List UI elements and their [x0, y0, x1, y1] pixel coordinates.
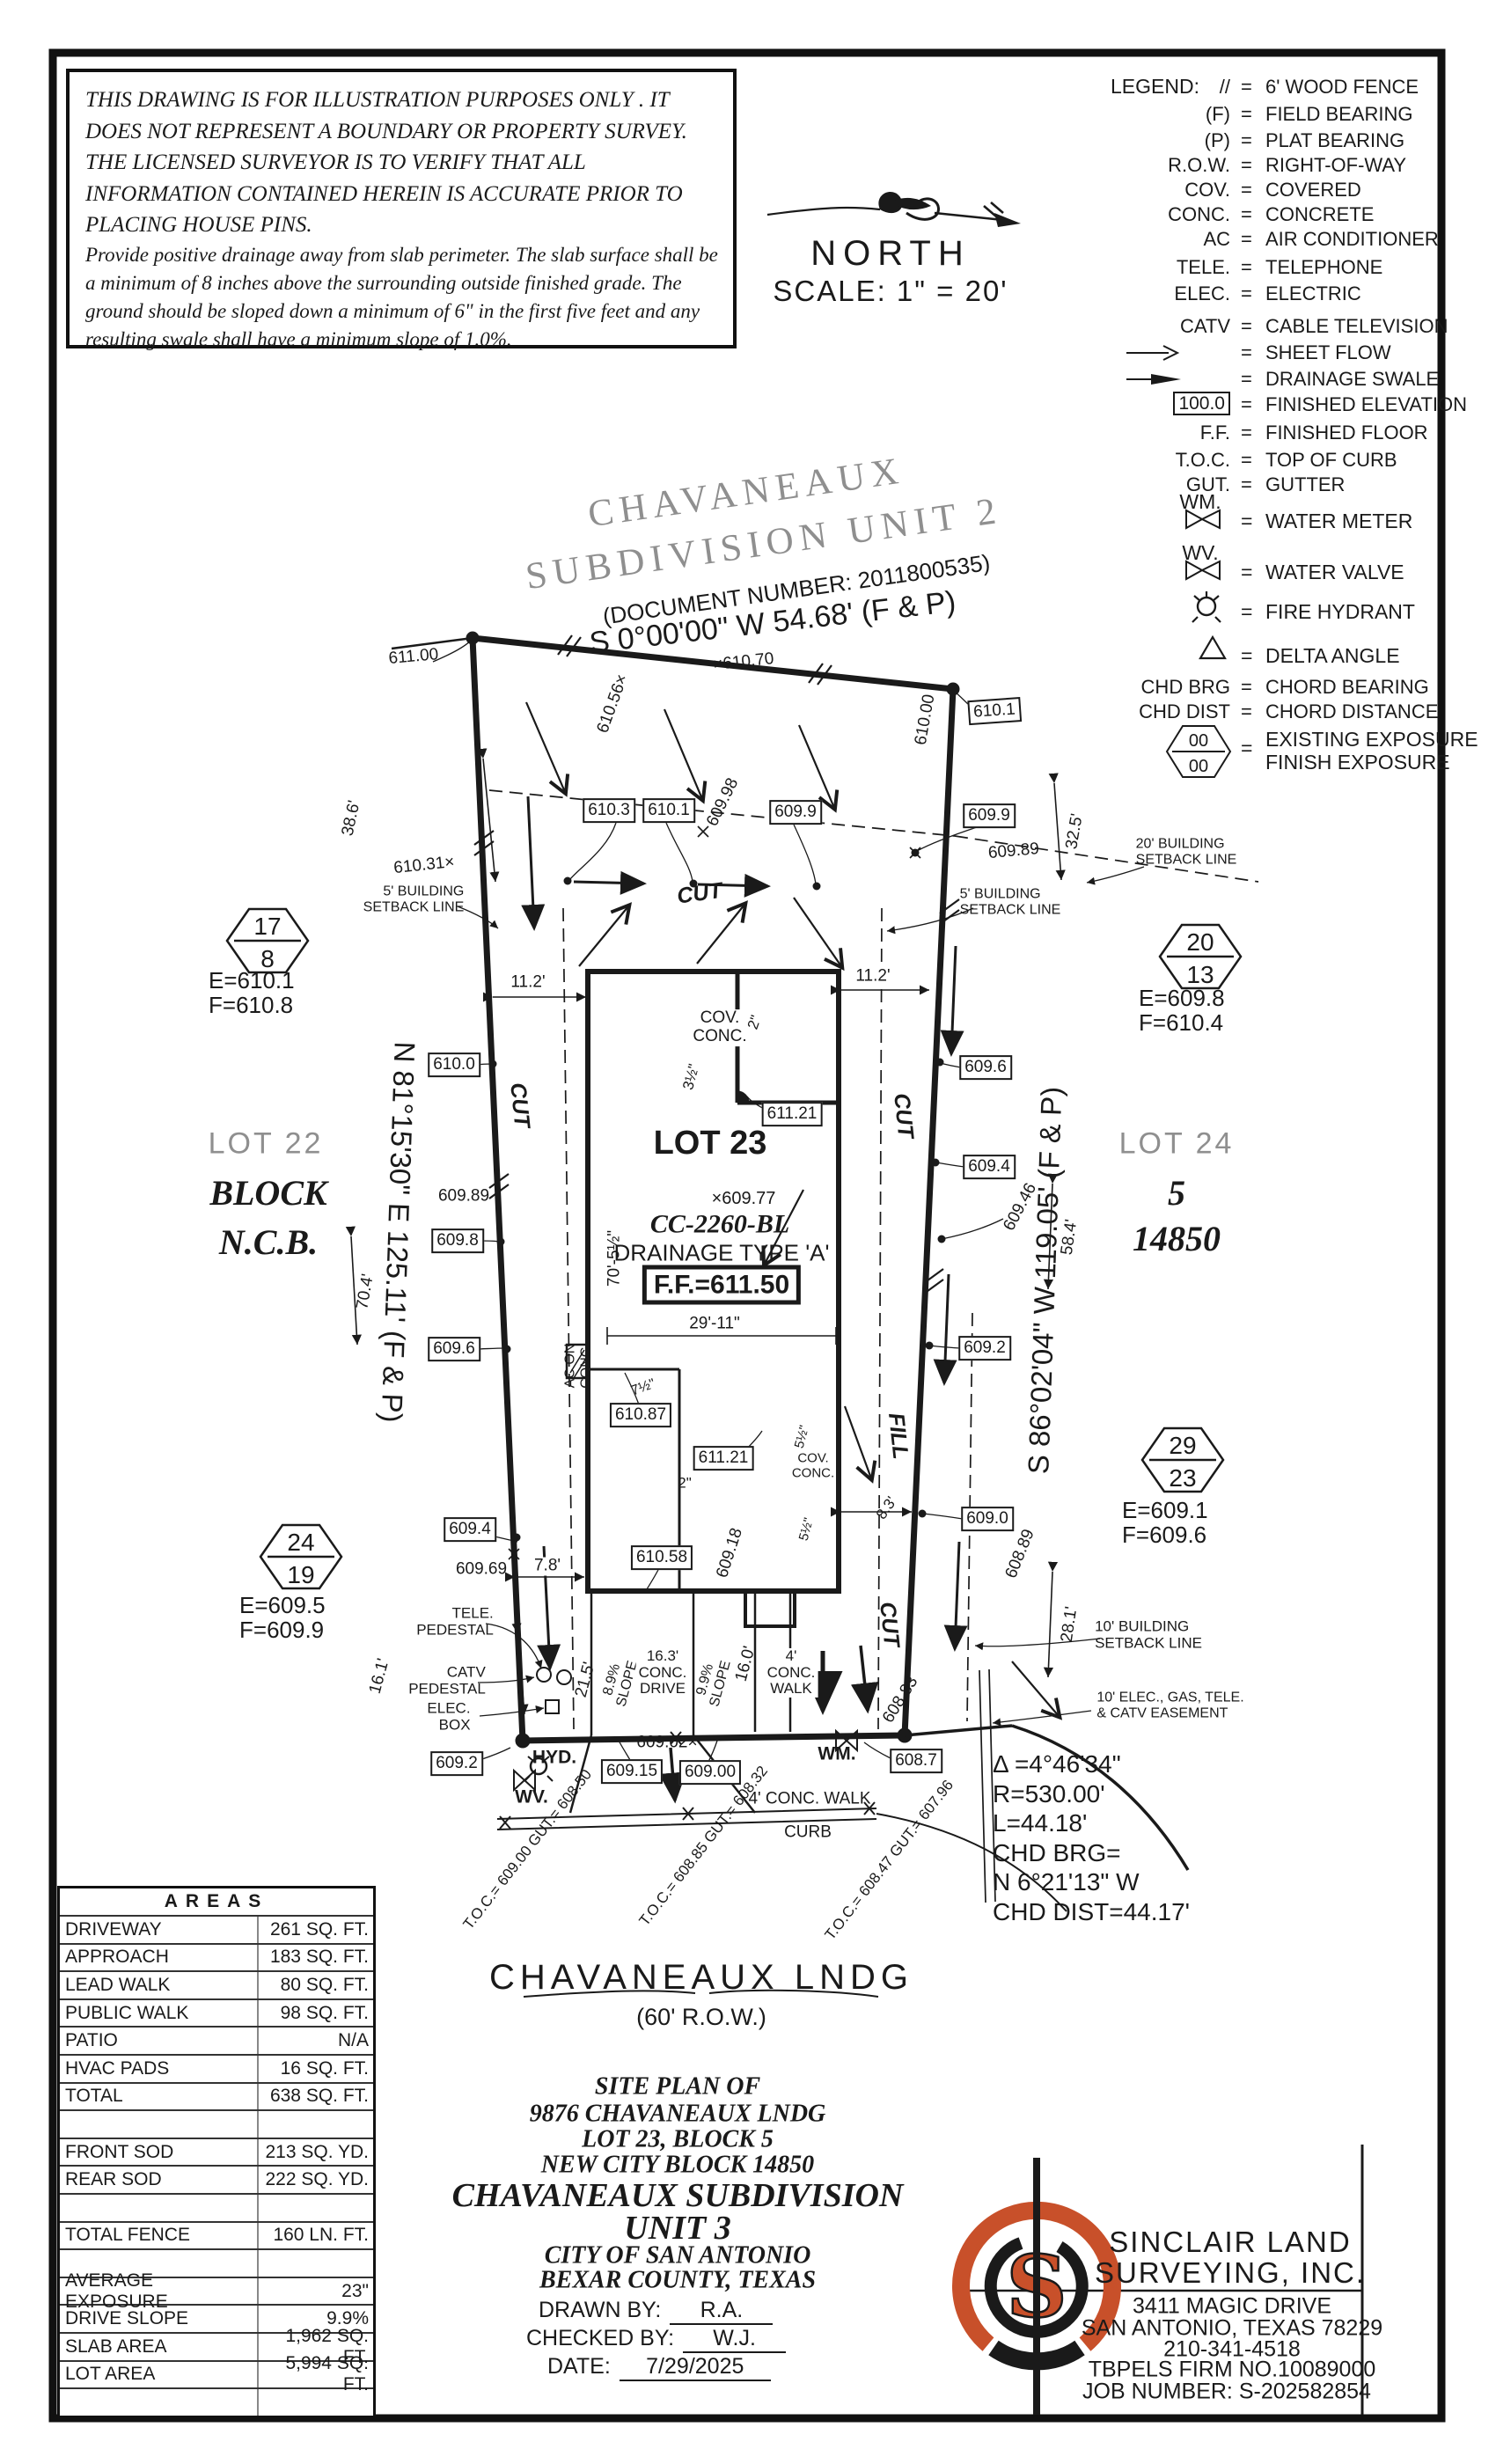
titleblock-lot-block: LOT 23, BLOCK 5 — [582, 2127, 774, 2154]
table-cell-label: SLAB AREA — [60, 2334, 259, 2360]
table-row — [60, 2109, 373, 2138]
svg-text:19: 19 — [287, 1561, 314, 1588]
cut-label-west: CUT — [505, 1082, 534, 1129]
legend-wm-eq: = — [1241, 510, 1252, 532]
svg-text:17: 17 — [253, 913, 281, 940]
legend-hex-desc: EXISTING EXPOSURE FINISH EXPOSURE — [1265, 728, 1478, 774]
svg-text:00: 00 — [1189, 731, 1208, 751]
curve-data: Δ =4°46'34" R=530.00' L=44.18' CHD BRG= … — [993, 1749, 1190, 1927]
table-cell-value: 23" — [259, 2281, 373, 2302]
catv-pedestal-label: CATV PEDESTAL — [408, 1664, 486, 1697]
existing-exposure-24: E=609.5 — [239, 1593, 326, 1618]
scale-label: SCALE: 1" = 20' — [773, 275, 1008, 307]
table-cell-label — [60, 2389, 259, 2416]
table-cell-value: 16 SQ. FT. — [259, 2058, 373, 2079]
areas-table-title: AREAS — [60, 1888, 373, 1915]
legend-delta-eq: = — [1241, 645, 1252, 667]
table-row: HVAC PADS 16 SQ. FT. — [60, 2054, 373, 2082]
elev-box-610-0: 610.0 — [428, 1052, 480, 1077]
legend-row-toc: T.O.C.=TOP OF CURB — [1126, 449, 1478, 473]
tele-pedestal-label: TELE. PEDESTAL — [416, 1605, 494, 1638]
drainage-type-label: DRAINAGE TYPE 'A' — [614, 1241, 830, 1266]
table-row: DRIVEWAY 261 SQ. FT. — [60, 1915, 373, 1943]
legend-wm-desc: WATER METER — [1265, 510, 1412, 532]
elev-box-609-2-sw: 609.2 — [430, 1751, 483, 1776]
legend-delta-desc: DELTA ANGLE — [1265, 645, 1400, 667]
elev-box-610-1-ne: 610.1 — [967, 697, 1021, 725]
drawn-by-label: DRAWN BY: — [539, 2298, 661, 2322]
table-cell-label: FRONT SOD — [60, 2139, 259, 2166]
finish-exposure-20: F=610.4 — [1139, 1010, 1223, 1036]
elev-box-609-15: 609.15 — [601, 1759, 663, 1784]
water-meter-icon — [1184, 509, 1221, 530]
table-cell-label: DRIVE SLOPE — [60, 2306, 259, 2332]
date-value: 7/29/2025 — [620, 2355, 771, 2381]
firm-job-number: JOB NUMBER: S-202582854 — [1082, 2380, 1371, 2404]
dim-70-5half: 70'-5½" — [606, 1230, 625, 1287]
elev-box-609-00: 609.00 — [679, 1760, 741, 1785]
drainage-swale-icon — [1126, 370, 1184, 389]
svg-text:23: 23 — [1169, 1464, 1196, 1492]
table-cell-label: TOTAL FENCE — [60, 2223, 259, 2249]
elev-box-609-4-west: 609.4 — [444, 1517, 496, 1542]
finished-elevation-box-icon: 100.0 — [1173, 392, 1230, 415]
ac-on-conc-label: AC ON CONC. — [562, 1343, 593, 1389]
exposure-hex-17-8: 17 8 — [225, 906, 310, 975]
setback-20ft-label: 20' BUILDING SETBACK LINE — [1136, 836, 1237, 867]
drawn-by-value: R.A. — [670, 2299, 773, 2325]
legend-row-concrete: CONC.=CONCRETE — [1126, 203, 1478, 227]
setback-5ft-label-east: 5' BUILDING SETBACK LINE — [960, 886, 1061, 917]
checked-by-row: CHECKED BY:W.J. — [526, 2327, 786, 2353]
legend-row-field-bearing: (F)=FIELD BEARING — [1126, 103, 1478, 127]
lot-22-label: LOT 22 — [209, 1127, 324, 1160]
dim-29-11: 29'-11" — [686, 1316, 743, 1334]
cut-label-east-upper: CUT — [889, 1092, 918, 1140]
elev-box-611-21-porch: 611.21 — [762, 1102, 823, 1126]
checked-by-value: W.J. — [683, 2327, 786, 2353]
firm-name-line2: SURVEYING, INC. — [1095, 2257, 1366, 2289]
site-plan-sheet: S THIS DRAWING IS FOR ILLUSTRATION PURPO… — [0, 0, 1496, 2464]
conc-walk-vertical-label: 4' CONC. WALK — [765, 1648, 818, 1698]
elev-box-610-87: 610.87 — [610, 1403, 671, 1427]
table-cell-label: LEAD WALK — [60, 1972, 259, 1998]
table-cell-label: PATIO — [60, 2028, 259, 2054]
legend-wv-desc: WATER VALVE — [1265, 561, 1404, 583]
legend-row-covered: COV.=COVERED — [1126, 179, 1478, 202]
legend-row-chd-dist: CHD DIST=CHORD DISTANCE — [1126, 700, 1478, 724]
table-row: LOT AREA 5,994 SQ. FT. — [60, 2360, 373, 2388]
table-cell-label — [60, 2111, 259, 2138]
easement-label: 10' ELEC., GAS, TELE. & CATV EASEMENT — [1096, 1690, 1243, 1720]
lot-23-label: LOT 23 — [654, 1126, 767, 1162]
stoop-2in-label: 2" — [678, 1476, 692, 1492]
block-5-label: 5 — [1168, 1174, 1185, 1213]
legend-row-ac: AC=AIR CONDITIONER — [1126, 228, 1478, 252]
curb-label: CURB — [784, 1824, 832, 1843]
legend-hydrant-eq: = — [1241, 601, 1252, 623]
legend-row-telephone: TELE.=TELEPHONE — [1126, 256, 1478, 280]
north-label: NORTH — [810, 234, 970, 273]
table-cell-label: LOT AREA — [60, 2362, 259, 2388]
date-label: DATE: — [547, 2354, 611, 2379]
existing-exposure-29: E=609.1 — [1122, 1498, 1208, 1523]
covered-concrete-stoop-label: COV. CONC. — [792, 1452, 834, 1481]
elev-box-609-9: 609.9 — [769, 800, 822, 825]
table-cell-value: 213 SQ. YD. — [259, 2142, 373, 2163]
table-row: LEAD WALK 80 SQ. FT. — [60, 1970, 373, 1998]
exposure-hex-29-23: 29 23 — [1140, 1426, 1225, 1494]
titleblock-address: 9876 CHAVANEAUX LNDG — [530, 2101, 826, 2129]
legend-row-finished-elevation: 100.0 =FINISHED ELEVATION — [1126, 393, 1478, 417]
table-row: PUBLIC WALK 98 SQ. FT. — [60, 1998, 373, 2027]
areas-table: AREAS DRIVEWAY 261 SQ. FT. APPROACH 183 … — [57, 1886, 376, 2418]
conc-walk-horizontal-label: 4' CONC. WALK — [748, 1791, 870, 1809]
wm-label: WM. — [818, 1743, 855, 1764]
cc-2260-bl-label: CC-2260-BL — [650, 1210, 789, 1239]
areas-table-body: DRIVEWAY 261 SQ. FT. APPROACH 183 SQ. FT… — [60, 1915, 373, 2416]
table-cell-value: 5,994 SQ. FT. — [259, 2353, 373, 2395]
spot-609-69: 609.69 — [456, 1561, 507, 1580]
table-cell-label: PUBLIC WALK — [60, 2000, 259, 2027]
titleblock-new-city-block: NEW CITY BLOCK 14850 — [541, 2152, 814, 2180]
table-cell-label: AVERAGE EXPOSURE — [60, 2278, 259, 2305]
table-cell-value: 80 SQ. FT. — [259, 1975, 373, 1996]
disclaimer-box: THIS DRAWING IS FOR ILLUSTRATION PURPOSE… — [66, 69, 737, 348]
disclaimer-note: Provide positive drainage away from slab… — [85, 241, 721, 355]
legend-hex-eq: = — [1241, 737, 1252, 759]
legend-row-wood-fence: //=6' WOOD FENCE — [1126, 76, 1478, 99]
legend-row-plat-bearing: (P)=PLAT BEARING — [1126, 129, 1478, 153]
legend-row-chd-brg: CHD BRG=CHORD BEARING — [1126, 676, 1478, 700]
conc-drive-label: 16.3' CONC. DRIVE — [636, 1648, 690, 1698]
hydrant-label: HYD. — [532, 1747, 576, 1767]
table-row: AVERAGE EXPOSURE 23" — [60, 2277, 373, 2305]
dim-11-2-west: 11.2' — [508, 974, 547, 993]
finished-floor-value: F.F.=611.50 — [642, 1265, 801, 1305]
elev-box-609-2-east: 609.2 — [958, 1336, 1011, 1360]
legend-row-sheet-flow: =SHEET FLOW — [1126, 341, 1478, 365]
lot-24-label: LOT 24 — [1119, 1127, 1235, 1160]
checked-by-label: CHECKED BY: — [526, 2326, 674, 2350]
elec-box-label: ELEC. BOX — [427, 1700, 470, 1733]
table-cell-value: 98 SQ. FT. — [259, 2003, 373, 2024]
titleblock-site-plan-of: SITE PLAN OF — [595, 2074, 760, 2101]
table-cell-label: HVAC PADS — [60, 2056, 259, 2082]
fill-label-east: FILL — [884, 1412, 913, 1460]
existing-exposure-17: E=610.1 — [209, 968, 295, 994]
legend-row-catv: CATV=CABLE TELEVISION — [1126, 315, 1478, 339]
legend-row-ff: F.F.=FINISHED FLOOR — [1126, 422, 1478, 445]
block-label: BLOCK — [209, 1174, 326, 1213]
street-name: CHAVANEAUX LNDG — [489, 1958, 913, 1997]
table-cell-value: 160 LN. FT. — [259, 2225, 373, 2246]
legend-wv-eq: = — [1241, 561, 1252, 583]
sheet-flow-icon — [1126, 343, 1184, 363]
setback-5ft-label-west: 5' BUILDING SETBACK LINE — [363, 884, 465, 914]
setback-10ft-label: 10' BUILDING SETBACK LINE — [1095, 1618, 1202, 1651]
table-cell-label: REAR SOD — [60, 2167, 259, 2193]
legend-row-electric: ELEC.=ELECTRIC — [1126, 282, 1478, 306]
svg-text:24: 24 — [287, 1529, 314, 1556]
elev-box-610-1: 610.1 — [642, 798, 695, 823]
table-row: TOTAL FENCE 160 LN. FT. — [60, 2221, 373, 2249]
existing-exposure-20: E=609.8 — [1139, 986, 1225, 1011]
cut-label-east-lower: CUT — [875, 1601, 904, 1648]
table-row: FRONT SOD 213 SQ. YD. — [60, 2138, 373, 2166]
finish-exposure-24: F=609.9 — [239, 1617, 324, 1643]
spot-609-77: ×609.77 — [712, 1189, 776, 1208]
disclaimer-caps: THIS DRAWING IS FOR ILLUSTRATION PURPOSE… — [85, 84, 721, 241]
delta-angle-icon — [1199, 635, 1227, 660]
finish-exposure-29: F=609.6 — [1122, 1522, 1206, 1548]
wv-label: WV. — [515, 1786, 548, 1807]
finish-exposure-17: F=610.8 — [209, 993, 293, 1018]
table-cell-value: 183 SQ. FT. — [259, 1947, 373, 1968]
sheet-flow-arrows — [526, 702, 1059, 1716]
dim-11-2-east: 11.2' — [853, 968, 892, 986]
date-row: DATE:7/29/2025 — [547, 2355, 771, 2381]
water-valve-icon — [1184, 560, 1221, 581]
north-arrow-icon — [759, 174, 1049, 238]
table-cell-label: APPROACH — [60, 1945, 259, 1971]
table-cell-value: N/A — [259, 2030, 373, 2051]
elev-box-608-7: 608.7 — [890, 1749, 942, 1773]
exposure-hex-20-13: 20 13 — [1158, 922, 1243, 991]
legend-row-row: R.O.W.=RIGHT-OF-WAY — [1126, 154, 1478, 178]
drawn-by-row: DRAWN BY:R.A. — [539, 2299, 773, 2325]
elev-box-609-6-west: 609.6 — [428, 1337, 480, 1361]
table-row — [60, 2193, 373, 2221]
firm-name-line1: SINCLAIR LAND — [1109, 2226, 1351, 2258]
exposure-hex-icon: 00 00 — [1165, 723, 1232, 780]
dim-7-8: 7.8' — [532, 1558, 563, 1576]
table-cell-value: 222 SQ. YD. — [259, 2169, 373, 2190]
elev-box-610-58: 610.58 — [631, 1545, 693, 1570]
spot-609-02: 609.02× — [636, 1734, 697, 1753]
exposure-hex-24-19: 24 19 — [259, 1522, 343, 1591]
elev-box-609-0-east: 609.0 — [961, 1507, 1014, 1531]
elev-box-610-3: 610.3 — [583, 798, 635, 823]
street-row-label: (60' R.O.W.) — [636, 2005, 766, 2031]
elev-box-609-9-east: 609.9 — [963, 803, 1016, 828]
fire-hydrant-icon — [1190, 588, 1223, 623]
table-row: PATIO N/A — [60, 2026, 373, 2054]
legend-hydrant-desc: FIRE HYDRANT — [1265, 601, 1415, 623]
table-row: REAR SOD 222 SQ. YD. — [60, 2165, 373, 2193]
elev-box-609-8: 609.8 — [431, 1228, 484, 1253]
elev-box-611-21-stoop: 611.21 — [693, 1446, 754, 1470]
table-row: APPROACH 183 SQ. FT. — [60, 1943, 373, 1971]
svg-text:20: 20 — [1186, 928, 1214, 956]
spot-609-89-west: 609.89 — [438, 1188, 489, 1206]
table-cell-label: TOTAL — [60, 2084, 259, 2110]
covered-concrete-porch-label: COV. CONC. — [690, 1009, 749, 1046]
table-row: TOTAL 638 SQ. FT. — [60, 2082, 373, 2110]
table-cell-label: DRIVEWAY — [60, 1917, 259, 1943]
legend-row-drainage-swale: =DRAINAGE SWALE — [1126, 368, 1478, 392]
titleblock-county: BEXAR COUNTY, TEXAS — [539, 2268, 816, 2295]
table-cell-value: 638 SQ. FT. — [259, 2086, 373, 2107]
elev-box-609-6-east: 609.6 — [959, 1055, 1012, 1080]
ncb-14850-label: 14850 — [1133, 1220, 1221, 1258]
table-cell-label — [60, 2195, 259, 2221]
elev-box-609-4-east: 609.4 — [963, 1155, 1016, 1179]
svg-text:00: 00 — [1189, 757, 1208, 776]
ncb-label: N.C.B. — [219, 1223, 318, 1262]
svg-text:29: 29 — [1169, 1432, 1196, 1459]
table-cell-value: 261 SQ. FT. — [259, 1919, 373, 1940]
